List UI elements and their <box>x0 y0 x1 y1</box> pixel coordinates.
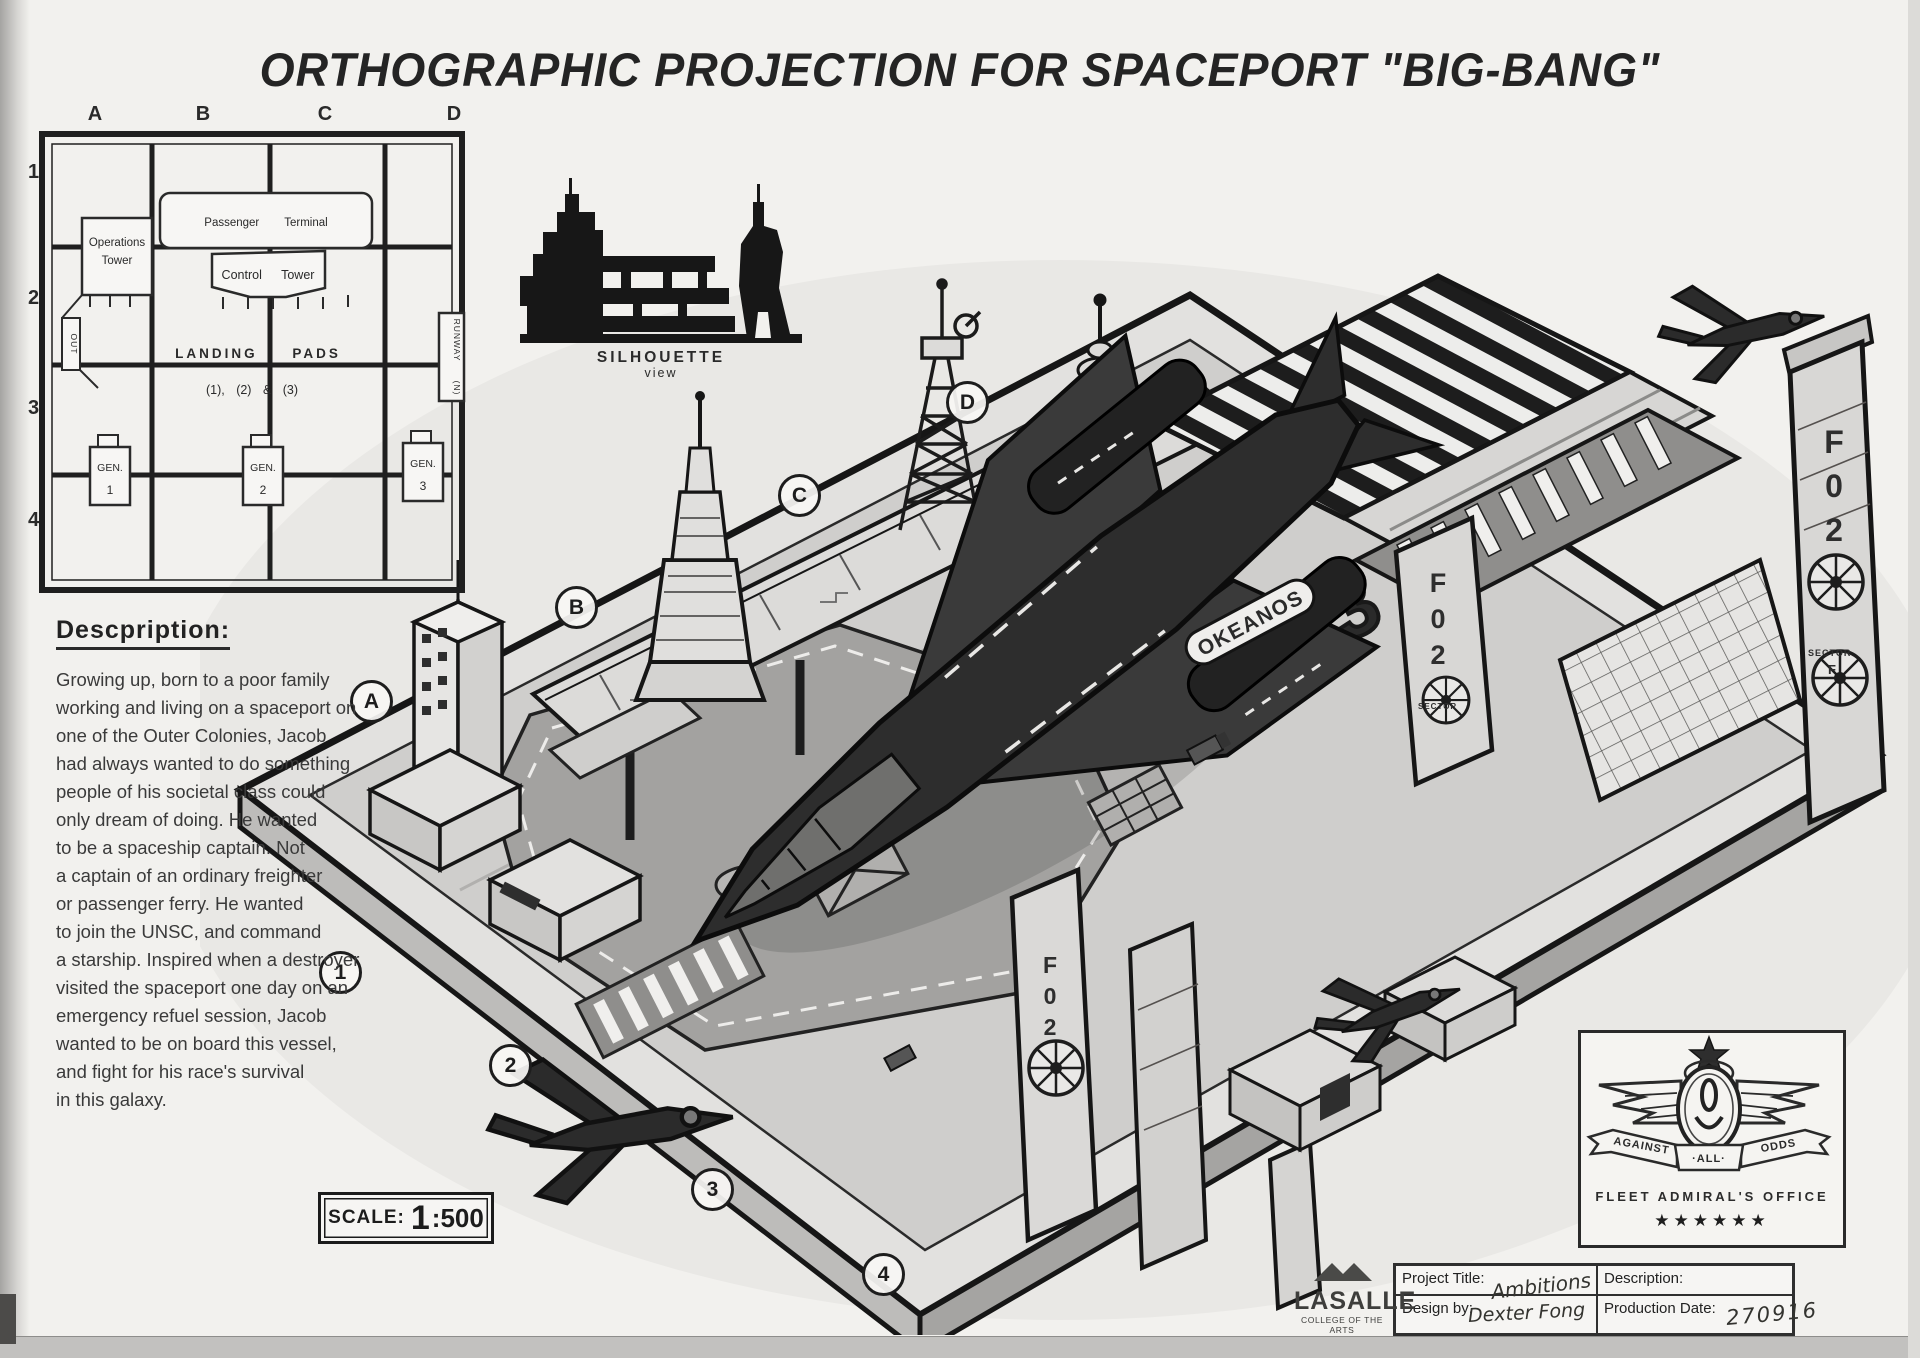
plan-gen2-label: GEN. <box>250 462 276 474</box>
front-pylon-marking: F02 <box>1038 952 1061 1045</box>
marker-number-4-label: 4 <box>878 1263 890 1287</box>
badge-motto-center: ·ALL· <box>1692 1153 1726 1165</box>
description-line: in this galaxy. <box>56 1086 356 1114</box>
description-line: to join the UNSC, and command <box>56 918 356 946</box>
scan-edge-right <box>1908 0 1920 1358</box>
sector-tower-mid-sector: SECTOR <box>1418 702 1457 711</box>
scale-box: SCALE: 1 :500 <box>318 1192 494 1244</box>
marker-letter-c-label: C <box>792 484 807 508</box>
title-block-description-cell: Description: <box>1598 1266 1792 1296</box>
silhouette-caption: SILHOUETTE <box>597 349 725 366</box>
description-label: Description: <box>1604 1270 1683 1287</box>
sector-tower-right-marking: F02 <box>1818 424 1850 556</box>
sector-tower-mid-marking: F02 <box>1424 568 1451 676</box>
plan-control-tower: Control Tower <box>222 268 315 282</box>
plan-operations-tower-line1: Operations <box>89 237 146 249</box>
marker-number-3: 3 <box>691 1168 734 1211</box>
plan-col-b: B <box>196 103 210 125</box>
description-line: had always wanted to do something <box>56 750 356 778</box>
plan-gen1-label: GEN. <box>97 462 123 474</box>
marker-letter-a-label: A <box>364 690 379 714</box>
lasalle-logo: LASALLE COLLEGE OF THE ARTS <box>1294 1262 1390 1335</box>
marker-letter-d-label: D <box>960 391 975 415</box>
plan-gen1-number: 1 <box>107 483 114 497</box>
description-heading: Descpription: <box>56 616 230 650</box>
plan-operations-tower-line2: Tower <box>102 255 133 267</box>
scale-ratio: :500 <box>432 1203 484 1234</box>
marker-number-3-label: 3 <box>707 1178 719 1202</box>
badge-stars: ★★★★★★ <box>1581 1211 1843 1231</box>
description-block: Descpription: Growing up, born to a poor… <box>56 616 356 1114</box>
plan-out-label: OUT <box>69 334 79 355</box>
marker-letter-b: B <box>555 586 598 629</box>
plan-gen3-number: 3 <box>420 479 427 493</box>
badge-emblem: AGAINST ·ALL· ODDS <box>1581 1033 1837 1185</box>
plan-runway-label: RUNWAY <box>452 319 462 362</box>
marker-letter-a: A <box>350 680 393 723</box>
sector-tower-right-letter: F <box>1828 662 1837 677</box>
plan-col-a: A <box>88 103 102 125</box>
lasalle-subtitle: COLLEGE OF THE ARTS <box>1294 1315 1390 1335</box>
marker-letter-b-label: B <box>569 596 584 620</box>
description-line: working and living on a spaceport on <box>56 694 356 722</box>
marker-number-4: 4 <box>862 1253 905 1296</box>
scan-edge-bottom <box>0 1336 1920 1358</box>
scan-edge-corner <box>0 1294 16 1344</box>
silhouette-caption-sub: view <box>644 366 677 380</box>
plan-col-c: C <box>318 103 332 125</box>
plan-gen2-number: 2 <box>260 483 267 497</box>
title-block-project-cell: Project Title: Ambitions <box>1396 1266 1598 1296</box>
title-block-design-cell: Design by: Dexter Fong <box>1396 1296 1598 1333</box>
marker-letter-d: D <box>946 381 989 424</box>
description-line: only dream of doing. He wanted <box>56 806 356 834</box>
plan-landing-pads: LANDING PADS <box>175 346 341 361</box>
production-date-label: Production Date: <box>1604 1300 1716 1317</box>
marker-number-2: 2 <box>489 1044 532 1087</box>
design-by-value: Dexter Fong <box>1468 1299 1586 1327</box>
plan-col-d: D <box>447 103 461 125</box>
silhouette-view: SILHOUETTE view <box>515 156 815 380</box>
title-block: Project Title: Ambitions Description: De… <box>1393 1263 1795 1336</box>
title-block-date-cell: Production Date: 270916 <box>1598 1296 1792 1333</box>
fleet-admiral-badge: AGAINST ·ALL· ODDS FLEET ADMIRAL'S OFFIC… <box>1578 1030 1846 1248</box>
description-line: Growing up, born to a poor family <box>56 666 356 694</box>
description-line: or passenger ferry. He wanted <box>56 890 356 918</box>
description-line: and fight for his race's survival <box>56 1058 356 1086</box>
scale-label: SCALE: <box>328 1207 405 1229</box>
description-line: a starship. Inspired when a destroyer <box>56 946 356 974</box>
description-line: emergency refuel session, Jacob <box>56 1002 356 1030</box>
plan-passenger-terminal: Passenger Terminal <box>204 217 327 229</box>
sector-tower-right-sector: SECTOR <box>1808 648 1851 658</box>
badge-office-title: FLEET ADMIRAL'S OFFICE <box>1581 1189 1843 1204</box>
description-line: wanted to be on board this vessel, <box>56 1030 356 1058</box>
description-line: to be a spaceship captain. Not <box>56 834 356 862</box>
description-line: one of the Outer Colonies, Jacob <box>56 722 356 750</box>
plan-runway-direction: (N) <box>452 381 462 396</box>
description-line: a captain of an ordinary freighter <box>56 862 356 890</box>
plan-view: A B C D 1 2 3 4 Operations Tower Passeng… <box>18 88 488 603</box>
marker-letter-c: C <box>778 474 821 517</box>
description-line: people of his societal class could <box>56 778 356 806</box>
description-line: visited the spaceport one day on an <box>56 974 356 1002</box>
scan-edge-left <box>0 0 30 1358</box>
scale-big-digit: 1 <box>411 1199 430 1238</box>
plan-landing-pads-numbers: (1), (2) & (3) <box>206 383 298 397</box>
marker-number-2-label: 2 <box>505 1054 517 1078</box>
badge-oval-emblem <box>1678 1067 1740 1151</box>
drawing-sheet: F-03 <box>0 0 1920 1358</box>
lasalle-logo-icon <box>1300 1262 1384 1282</box>
lasalle-brand: LASALLE <box>1294 1289 1390 1314</box>
plan-gen3-label: GEN. <box>410 458 436 470</box>
project-title-label: Project Title: <box>1402 1270 1485 1287</box>
